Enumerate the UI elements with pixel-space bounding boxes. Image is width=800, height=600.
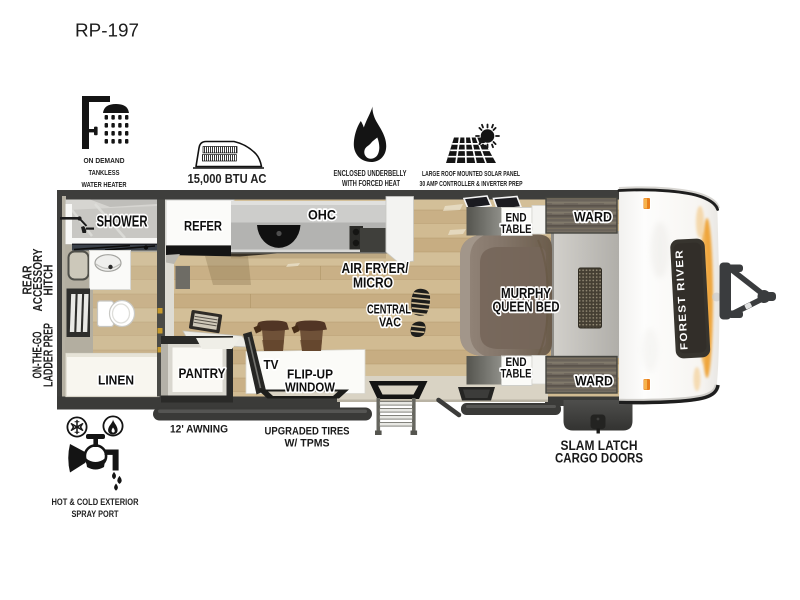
svg-text:HOT & COLD EXTERIOR: HOT & COLD EXTERIOR: [52, 497, 140, 507]
svg-text:WATER HEATER: WATER HEATER: [82, 180, 127, 189]
svg-text:REFER: REFER: [184, 218, 222, 234]
svg-text:END: END: [506, 357, 527, 369]
svg-text:WINDOW: WINDOW: [285, 380, 336, 395]
svg-text:QUEEN BED: QUEEN BED: [493, 300, 560, 316]
svg-text:MICRO: MICRO: [353, 276, 393, 292]
svg-text:TV: TV: [264, 358, 280, 372]
svg-text:OHC: OHC: [308, 208, 336, 223]
svg-text:END: END: [506, 213, 527, 225]
svg-text:W/ TPMS: W/ TPMS: [285, 438, 330, 450]
svg-text:TABLE: TABLE: [501, 224, 532, 236]
svg-text:LINEN: LINEN: [98, 373, 134, 388]
svg-text:15,000 BTU AC: 15,000 BTU AC: [188, 172, 267, 186]
svg-text:WARD: WARD: [575, 373, 613, 389]
svg-text:SPRAY PORT: SPRAY PORT: [72, 509, 120, 519]
svg-text:PANTRY: PANTRY: [179, 366, 226, 381]
svg-text:TABLE: TABLE: [501, 369, 532, 381]
svg-text:LARGE ROOF MOUNTED SOLAR PANEL: LARGE ROOF MOUNTED SOLAR PANEL: [422, 169, 520, 178]
svg-text:TANKLESS: TANKLESS: [89, 168, 120, 177]
svg-text:SHOWER: SHOWER: [97, 214, 148, 231]
svg-text:WITH FORCED HEAT: WITH FORCED HEAT: [342, 179, 400, 188]
svg-text:RP-197: RP-197: [75, 20, 139, 41]
svg-text:CENTRAL: CENTRAL: [367, 303, 411, 317]
svg-text:VAC: VAC: [379, 316, 401, 330]
svg-text:CARGO DOORS: CARGO DOORS: [555, 451, 643, 466]
svg-text:HITCH: HITCH: [42, 265, 56, 296]
svg-text:LADDER PREP: LADDER PREP: [42, 323, 56, 387]
svg-text:UPGRADED TIRES: UPGRADED TIRES: [265, 426, 350, 438]
svg-text:WARD: WARD: [574, 209, 612, 225]
svg-text:12' AWNING: 12' AWNING: [170, 424, 228, 436]
svg-text:30 AMP CONTROLLER & INVERTER P: 30 AMP CONTROLLER & INVERTER PREP: [420, 179, 523, 188]
svg-text:ENCLOSED UNDERBELLY: ENCLOSED UNDERBELLY: [334, 169, 408, 178]
svg-text:ON DEMAND: ON DEMAND: [84, 156, 125, 165]
